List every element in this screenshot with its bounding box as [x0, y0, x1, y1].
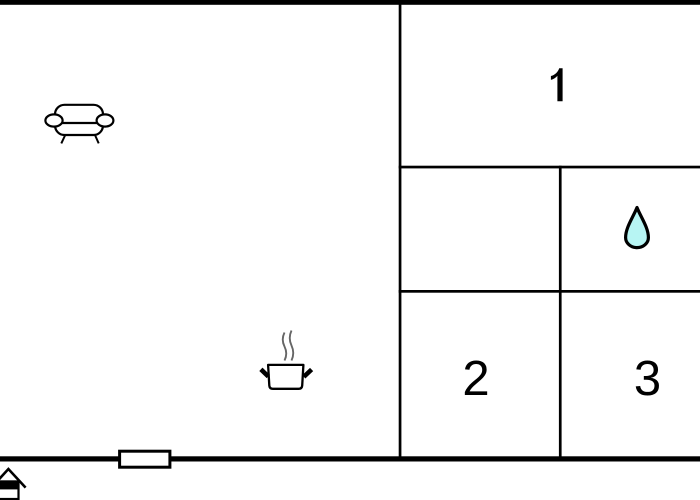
- svg-text:3: 3: [634, 352, 661, 406]
- svg-text:2: 2: [462, 352, 489, 406]
